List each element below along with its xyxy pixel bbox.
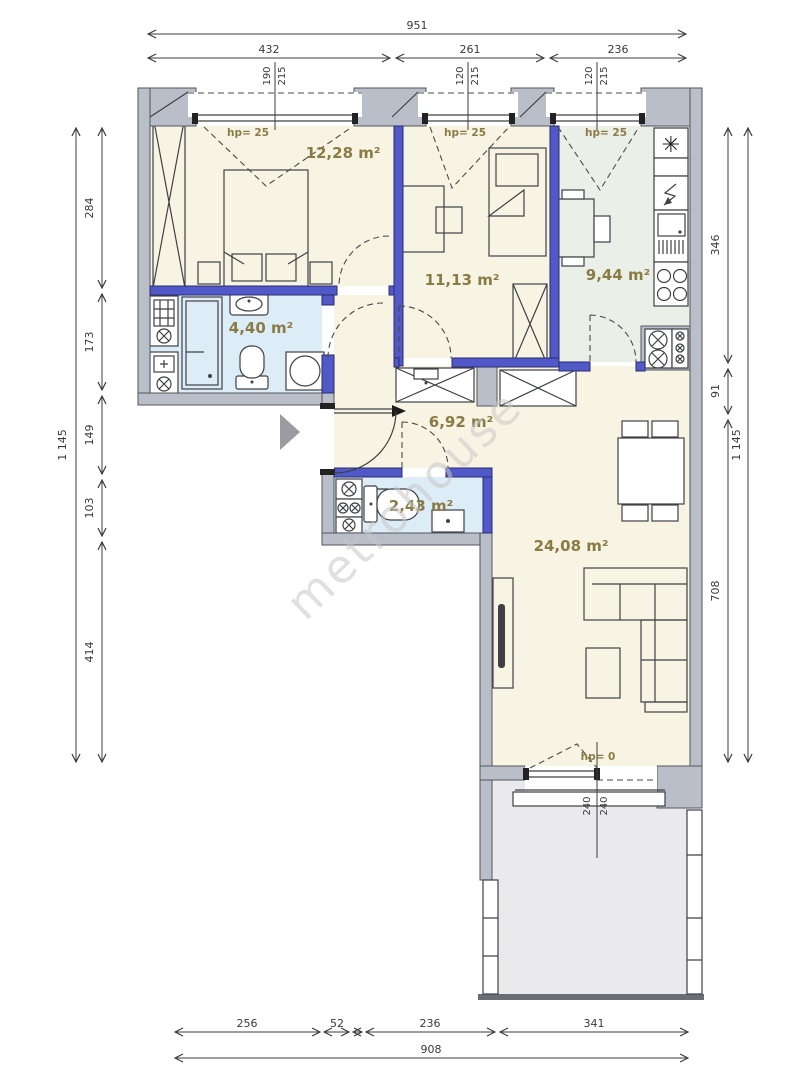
- bathroom-sink: [230, 293, 268, 315]
- dim-win1-a: 190: [262, 66, 273, 85]
- meter-shaft-kitchen: [641, 326, 692, 370]
- dim-win3-b: 215: [599, 66, 610, 85]
- dim-right-total: 1 145: [730, 429, 743, 461]
- dim-top-seg-2: 261: [460, 43, 481, 56]
- dim-left-seg-2: 173: [83, 332, 96, 353]
- floorplan-drawing: ✳: [0, 0, 797, 1080]
- dim-bottom-seg-1: 256: [237, 1017, 258, 1030]
- dim-left-total: 1 145: [56, 429, 69, 461]
- label-bathroom-area: 4,40 m²: [229, 319, 293, 337]
- dim-bottom-seg-2: 52: [330, 1017, 344, 1030]
- balcony-slab-edge: [478, 994, 704, 1000]
- dim-win2-a: 120: [455, 66, 466, 85]
- washing-machine: [286, 352, 324, 390]
- label-child-area: 11,13 m²: [425, 271, 500, 289]
- floorplan-page: ✳: [0, 0, 797, 1080]
- dim-top-total: 951: [407, 19, 428, 32]
- label-living-area: 24,08 m²: [534, 537, 609, 555]
- label-hp-child: hp= 25: [444, 127, 486, 139]
- dim-top-seg-3: 236: [608, 43, 629, 56]
- dim-top-seg-1: 432: [259, 43, 280, 56]
- dim-bottom-seg-4: 341: [584, 1017, 605, 1030]
- dim-left-seg-1: 284: [83, 198, 96, 219]
- dim-right-seg-1: 346: [709, 235, 722, 256]
- dim-balcony-a: 240: [582, 796, 593, 815]
- dim-bottom-total: 908: [421, 1043, 442, 1056]
- hall-wardrobe-left: [396, 368, 474, 402]
- dim-right-seg-3: 708: [709, 581, 722, 602]
- dim-win1-b: 215: [277, 66, 288, 85]
- dim-left-seg-3: 149: [83, 425, 96, 446]
- dim-left-seg-4: 103: [83, 498, 96, 519]
- fridge-icon: ✳: [662, 133, 680, 158]
- corridor: [334, 295, 394, 366]
- entrance-arrow-icon: [280, 414, 300, 450]
- label-bedroom-area: 12,28 m²: [306, 144, 381, 162]
- dim-bottom-seg-3: 236: [420, 1017, 441, 1030]
- dimensions-bottom: 256 52 236 341 908: [175, 1017, 688, 1058]
- label-hp-bedroom: hp= 25: [227, 127, 269, 139]
- dim-balcony-b: 240: [599, 796, 610, 815]
- dim-left-seg-5: 414: [83, 642, 96, 663]
- meter-shaft-bathroom: [150, 296, 178, 396]
- toilet-bathroom: [236, 346, 268, 389]
- label-kitchen-area: 9,44 m²: [586, 266, 650, 284]
- label-hp-kitchen: hp= 25: [585, 127, 627, 139]
- label-hp-balcony: hp= 0: [581, 751, 616, 763]
- dim-win2-b: 215: [470, 66, 481, 85]
- dimensions-right: 346 91 708 1 145: [709, 128, 748, 762]
- dim-win3-a: 120: [584, 66, 595, 85]
- room-child: [403, 126, 550, 358]
- dimensions-left: 1 145 284 173 149 103 414: [56, 128, 102, 762]
- dim-right-seg-2: 91: [709, 384, 722, 398]
